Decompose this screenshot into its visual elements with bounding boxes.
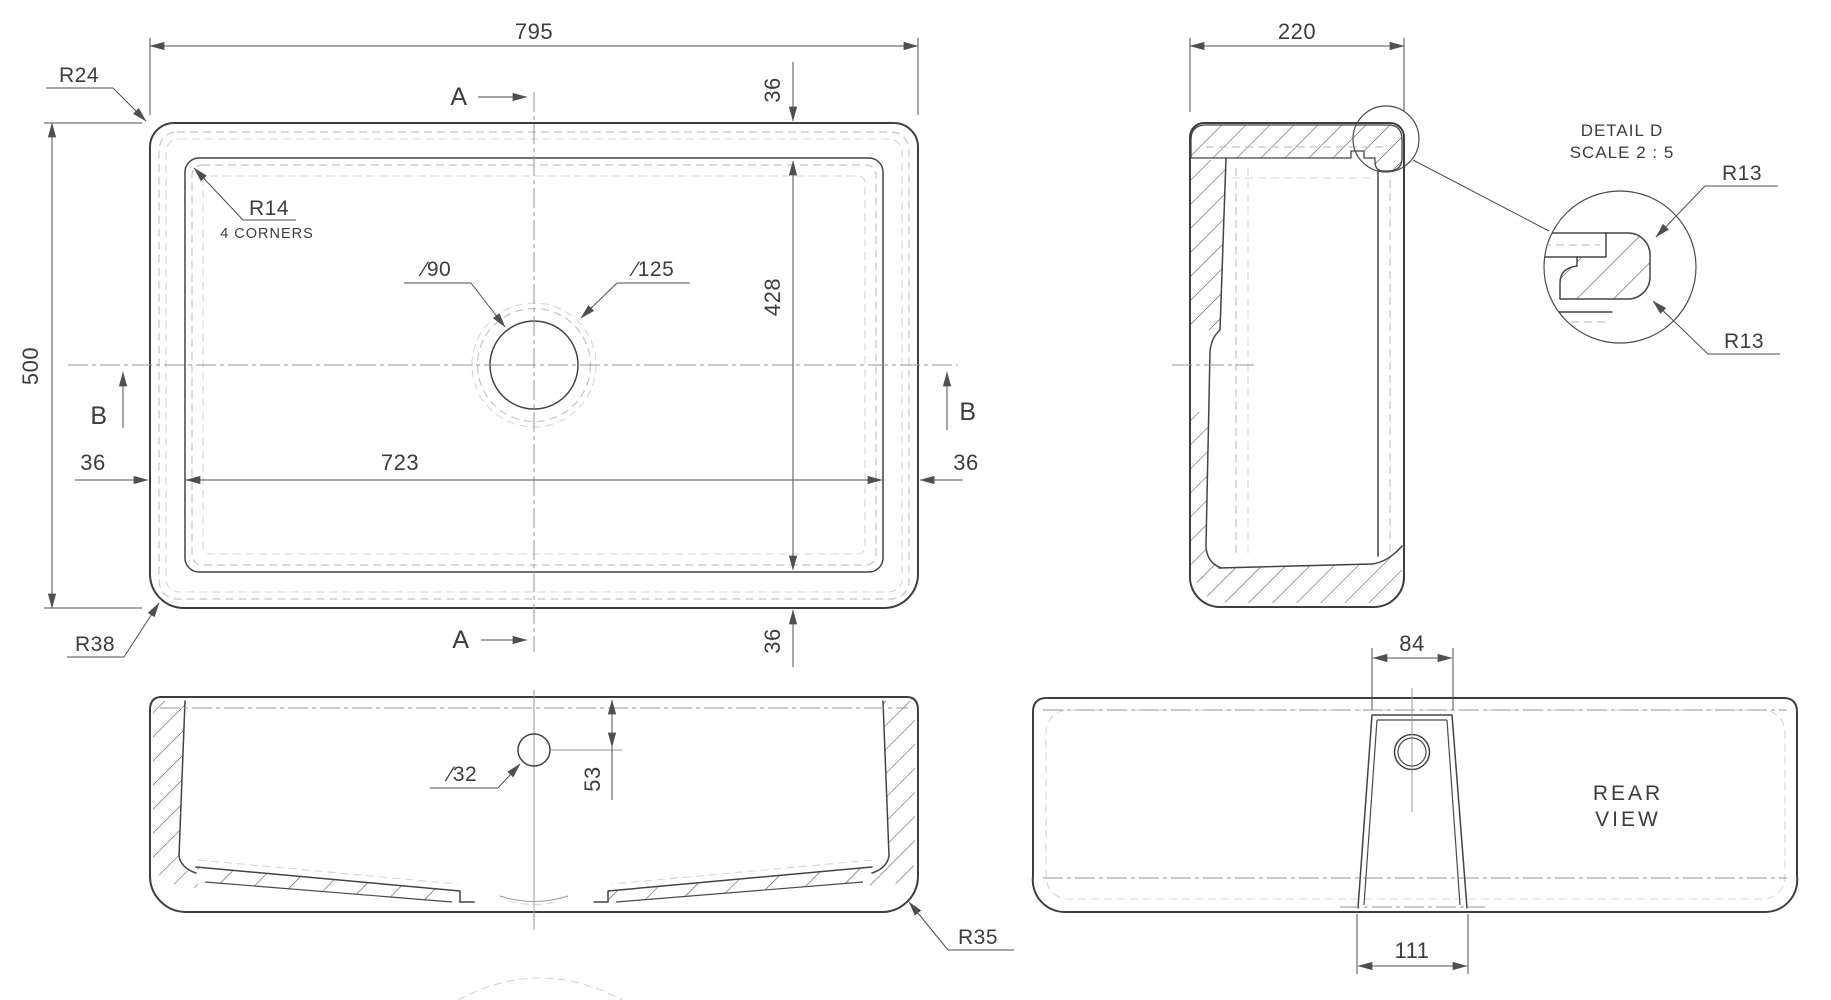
rear-outline: [1033, 698, 1798, 912]
front-corner-radius: R35: [958, 926, 998, 949]
side-section-view: 220: [1172, 19, 1549, 607]
sheet-edge-mark: [458, 978, 622, 1000]
section-b-label-left: B: [90, 402, 107, 430]
technical-drawing: 795 500 36 428 36 36 723 36 A A B B R24: [0, 0, 1831, 1000]
detail-radius-bottom: R13: [1724, 330, 1764, 353]
rear-view-caption-line2: VIEW: [1595, 808, 1661, 831]
plan-view: 795 500 36 428 36 36 723 36 A A B B R24: [18, 19, 979, 667]
section-b-label-right: B: [959, 398, 976, 426]
side-wall-section-lower: [1191, 412, 1221, 580]
plan-height-dim: 500: [18, 347, 43, 385]
detail-leader: [1413, 160, 1549, 231]
plan-recess-diameter: ∕125: [629, 258, 675, 281]
plan-corner-radius-inner-note: 4 CORNERS: [220, 226, 314, 242]
plan-corner-radius-outer: R24: [59, 64, 99, 87]
rear-view-caption-line1: REAR: [1593, 782, 1663, 805]
detail-d-scale: SCALE 2 : 5: [1570, 143, 1675, 162]
side-bottom-section: [1196, 544, 1402, 603]
plan-corner-radius-front: R38: [75, 633, 115, 656]
rear-chute-bottom-dim: 111: [1395, 938, 1430, 963]
plan-width-dim: 795: [515, 19, 553, 44]
front-overflow-depth-dim: 53: [580, 766, 605, 791]
detail-d-title: DETAIL D: [1581, 121, 1664, 140]
side-depth-dim: 220: [1278, 19, 1316, 44]
plan-inner-height-dim: 428: [760, 278, 785, 316]
plan-corner-radius-inner: R14: [249, 197, 289, 220]
rear-view: 84 111 REAR VIEW: [1033, 631, 1798, 974]
detail-d-content: [1543, 233, 1650, 322]
plan-drain-diameter: ∕90: [418, 258, 451, 281]
section-a-label-top: A: [450, 83, 467, 111]
drawing-canvas: 795 500 36 428 36 36 723 36 A A B B R24: [0, 0, 1831, 1000]
plan-top-offset-dim: 36: [760, 77, 785, 102]
front-overflow-diameter: ∕32: [444, 763, 477, 786]
plan-left-offset-dim: 36: [80, 450, 105, 475]
front-section-view: 53 ∕32 R35: [150, 690, 1014, 1000]
section-a-label-bottom: A: [452, 626, 469, 654]
plan-right-offset-dim: 36: [953, 450, 978, 475]
plan-bottom-offset-dim: 36: [760, 628, 785, 653]
rear-chute-top-dim: 84: [1399, 631, 1424, 656]
plan-inner-width-dim: 723: [381, 450, 419, 475]
detail-d-view: DETAIL D SCALE 2 : 5 R13 R13: [1543, 121, 1780, 354]
detail-radius-top: R13: [1722, 162, 1762, 185]
detail-rim-section: [1560, 233, 1650, 299]
